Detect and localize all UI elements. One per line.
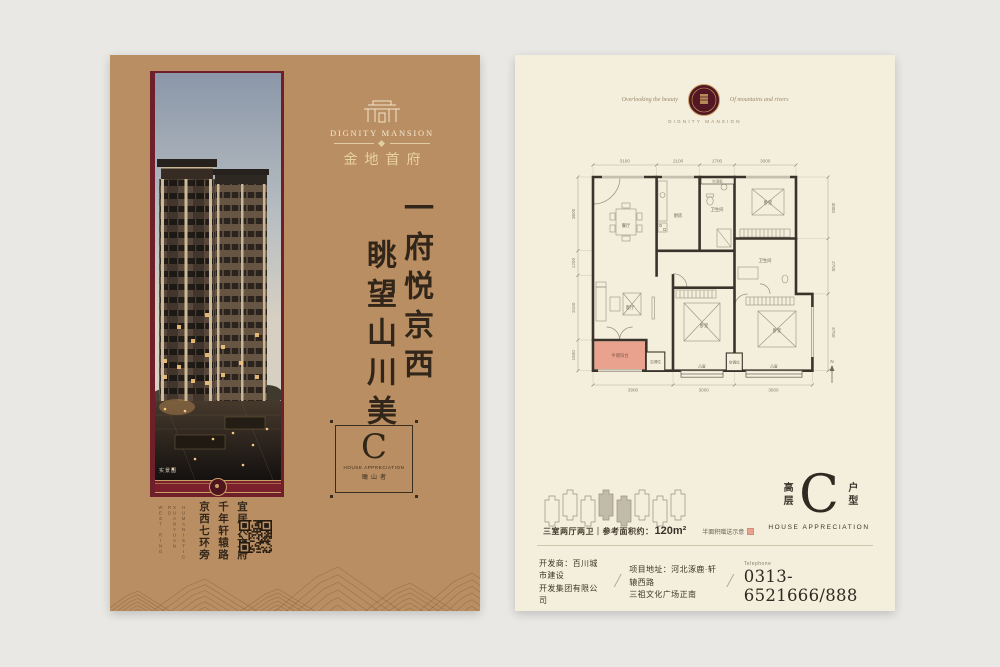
unit-info: 三室两厅两卫｜参考面积约： 120m² 半面积赠送示意 [543, 525, 754, 537]
seal-subtitle: DIGNITY MANSION [515, 119, 895, 124]
unit-area-value: 120m² [655, 525, 687, 537]
unit-type-block: 高层 C 户型 HOUSE APPRECIATION [758, 467, 880, 531]
qr-code [239, 520, 272, 553]
round-seal-icon [687, 83, 721, 117]
brand-name-en: DIGNITY MANSION [308, 128, 456, 138]
room-label: 卧室 [773, 327, 782, 334]
telephone-number: 0313-6521666/888 [744, 567, 873, 605]
dim-label: 1700 [712, 159, 723, 164]
room-label: 卧室 [700, 322, 709, 329]
room-label: 卫生间 [759, 257, 772, 264]
room-label: 凸窗 [698, 364, 706, 369]
dim-label: 3150 [571, 302, 576, 313]
room-label: 卧室 [764, 199, 773, 206]
dim-label: 2100 [673, 159, 684, 164]
furniture-lines [596, 181, 796, 347]
room-label: 凸窗 [770, 364, 778, 369]
photo-caption: 实景图 [159, 467, 177, 474]
dim-label: 3000 [760, 159, 771, 164]
type-letter: C [799, 467, 839, 523]
left-poster: 实景图 DIGNITY MANSION 金地首府 一府悦京西 眺望山川美 C H… [110, 55, 480, 611]
room-label: 卫生间 [711, 206, 724, 213]
developer-info: 开发商：百川城市建设 开发集团有限公司 / 项目地址：河北涿鹿·轩辕西路 三祖文… [539, 558, 873, 608]
dim-label: 1200 [571, 258, 576, 269]
room-label: 餐厅 [622, 222, 631, 229]
photo-ribbon [155, 480, 281, 493]
seal-script-left: Overlooking the beauty [622, 97, 678, 103]
poster-canvas: 实景图 DIGNITY MANSION 金地首府 一府悦京西 眺望山川美 C H… [0, 0, 1000, 667]
room-label: 厨房 [674, 212, 683, 219]
type-subtitle: HOUSE APPRECIATION [758, 524, 880, 531]
legend-swatch [747, 528, 754, 535]
ac-boxes [646, 178, 742, 371]
room-label: 空调板 [712, 179, 723, 184]
room-label: 半赠阳台 [611, 352, 628, 359]
mountain-contour-art [110, 551, 480, 611]
door-arcs [593, 177, 770, 340]
brand-block: DIGNITY MANSION 金地首府 [308, 97, 456, 169]
floor-plan: 3100 2100 1700 3000 3900 3000 3800 3600 … [560, 147, 850, 399]
type-badge: C HOUSE APPRECIATION 瞰山者 [335, 425, 413, 493]
compass-icon: N [830, 359, 835, 383]
unit-layout-text: 三室两厅两卫｜参考面积约： [543, 526, 654, 537]
project-address: 项目地址：河北涿鹿·轩辕西路 三祖文化广场正南 [629, 564, 718, 601]
room-label: 空调位 [729, 360, 740, 365]
room-label: 客厅 [626, 304, 635, 311]
type-subtitle: HOUSE APPRECIATION [336, 465, 412, 470]
dim-label: 3900 [628, 388, 639, 393]
slash-divider: / [615, 570, 621, 593]
type-suffix: 户型 [844, 482, 859, 508]
dim-label: 3750 [831, 327, 836, 338]
ribbon-emblem-icon [209, 478, 227, 496]
svg-text:N: N [830, 359, 833, 364]
building-photo: 实景图 [155, 73, 281, 493]
building-tower-image [155, 73, 281, 480]
legend-text: 半面积赠送示意 [702, 527, 744, 536]
type-caption: 瞰山者 [336, 472, 412, 481]
gift-area-legend: 半面积赠送示意 [702, 527, 754, 536]
seal-header: Overlooking the beauty Of mountains and … [515, 83, 895, 124]
developer-name: 开发商：百川城市建设 开发集团有限公司 [539, 558, 606, 608]
seal-script-right: Of mountains and rivers [730, 97, 789, 103]
dim-label: 2700 [831, 261, 836, 272]
divider [537, 545, 873, 546]
dim-label: 3600 [571, 208, 576, 219]
dim-label: 3100 [620, 159, 631, 164]
type-prefix: 高层 [779, 482, 794, 508]
brand-name-cn: 金地首府 [308, 149, 456, 169]
dim-label: 3800 [768, 388, 779, 393]
building-footprint-diagram [543, 489, 693, 529]
gate-monogram-icon [359, 97, 405, 123]
room-label: 空调位 [650, 359, 661, 364]
right-poster: Overlooking the beauty Of mountains and … [515, 55, 895, 611]
dim-label: 1500 [571, 350, 576, 361]
telephone-block: Telephone 0313-6521666/888 [744, 561, 873, 605]
brand-divider [334, 141, 430, 146]
slash-divider: / [727, 570, 733, 593]
dim-label: 3000 [831, 203, 836, 214]
dim-label: 3000 [699, 388, 710, 393]
type-letter: C [336, 429, 412, 465]
